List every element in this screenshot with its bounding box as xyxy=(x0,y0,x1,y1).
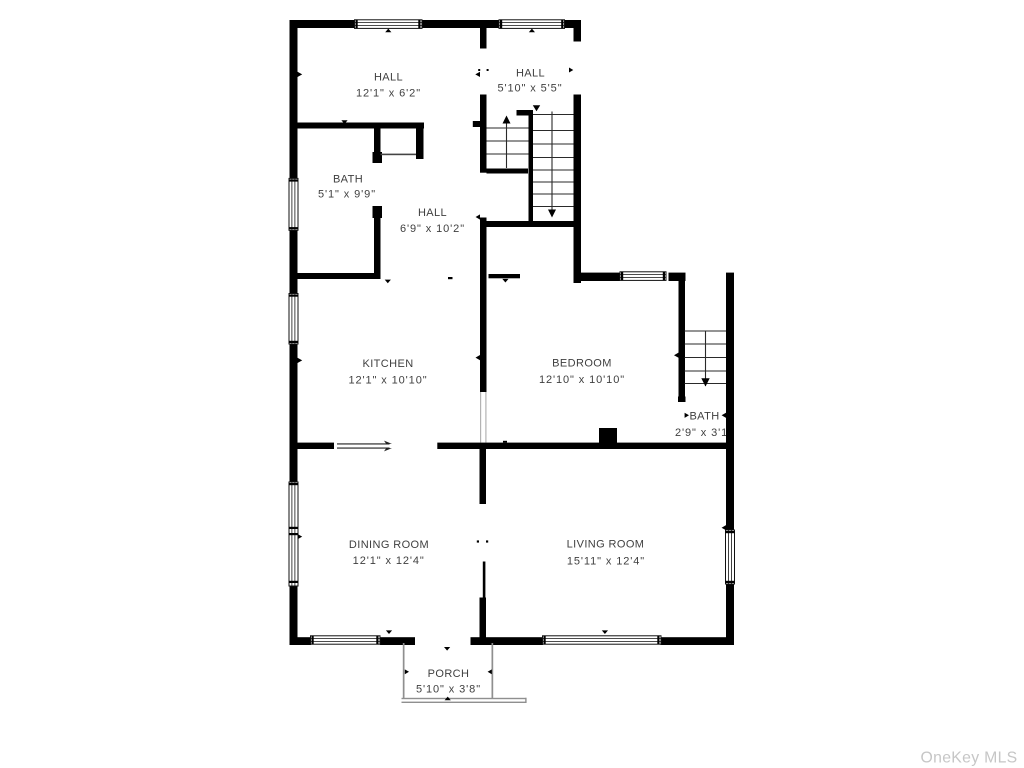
svg-text:12'1" x 12'4": 12'1" x 12'4" xyxy=(353,555,425,567)
svg-text:6'9" x 10'2": 6'9" x 10'2" xyxy=(400,223,465,235)
svg-text:HALL: HALL xyxy=(418,207,447,219)
svg-text:2'9" x 3'1": 2'9" x 3'1" xyxy=(675,427,733,439)
svg-text:PORCH: PORCH xyxy=(428,668,470,680)
svg-text:OneKey MLS: OneKey MLS xyxy=(921,749,1018,766)
svg-text:12'1" x 10'10": 12'1" x 10'10" xyxy=(348,375,427,387)
svg-text:5'10" x 5'5": 5'10" x 5'5" xyxy=(497,83,562,95)
svg-text:12'1" x 6'2": 12'1" x 6'2" xyxy=(356,88,421,100)
svg-text:KITCHEN: KITCHEN xyxy=(362,358,413,370)
svg-text:DINING ROOM: DINING ROOM xyxy=(349,539,429,551)
svg-text:HALL: HALL xyxy=(516,67,545,79)
svg-text:LIVING ROOM: LIVING ROOM xyxy=(567,539,645,551)
svg-text:12'10" x 10'10": 12'10" x 10'10" xyxy=(539,374,625,386)
svg-text:5'1" x 9'9": 5'1" x 9'9" xyxy=(318,189,376,201)
svg-text:BATH: BATH xyxy=(689,411,719,423)
svg-text:HALL: HALL xyxy=(374,72,403,84)
svg-text:15'11" x 12'4": 15'11" x 12'4" xyxy=(567,556,645,568)
svg-text:BATH: BATH xyxy=(333,173,363,185)
svg-text:5'10" x 3'8": 5'10" x 3'8" xyxy=(416,684,481,696)
svg-text:BEDROOM: BEDROOM xyxy=(552,358,612,370)
